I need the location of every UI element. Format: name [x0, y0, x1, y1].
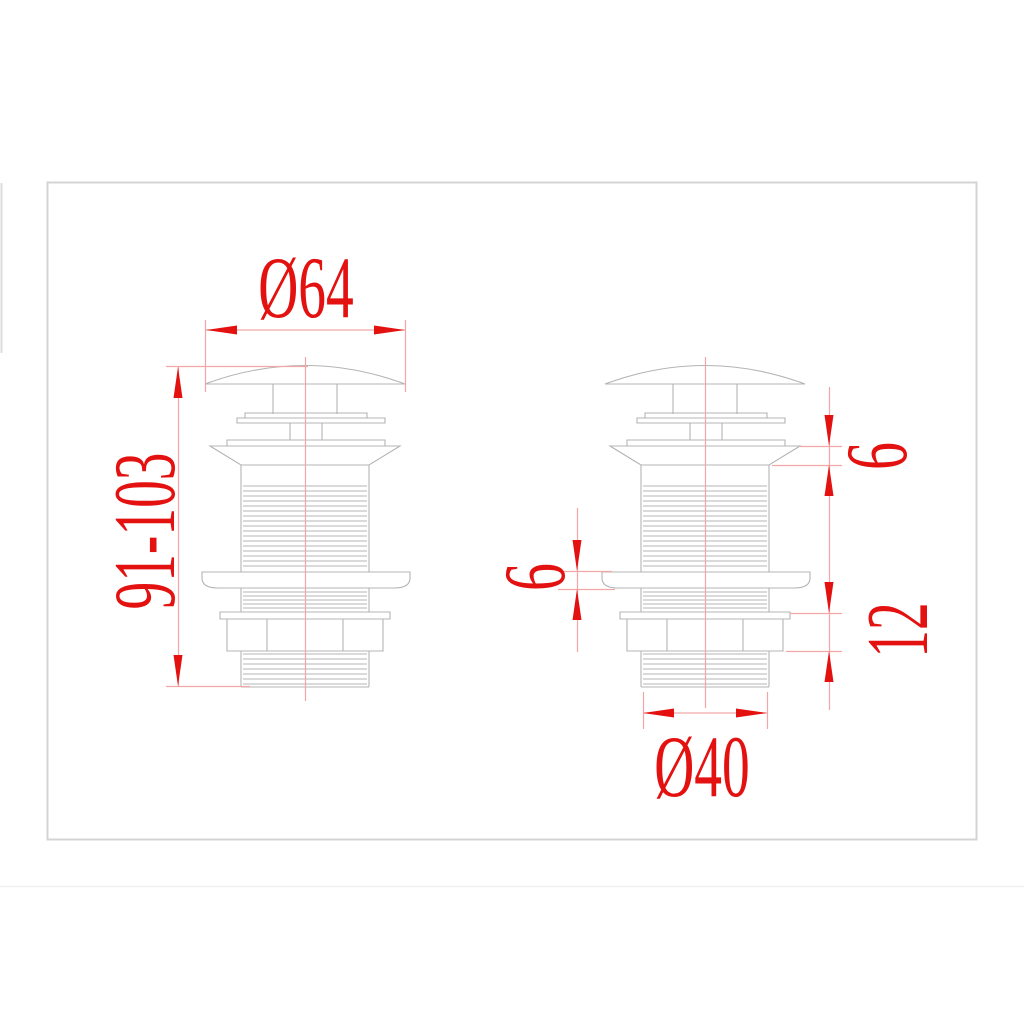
arrow-flange6-top: [825, 415, 834, 446]
dim-washer-thickness-label: 6: [485, 563, 583, 591]
technical-drawing: Ø64 91-103 6 6 12 Ø40: [0, 0, 1024, 1024]
arrow-12-top: [825, 582, 834, 613]
dim-top-diameter-label: Ø64: [258, 238, 353, 336]
arrow-height-top: [174, 367, 183, 398]
arrow-d64-right: [374, 326, 405, 335]
dim-height-range-label: 91-103: [95, 452, 193, 609]
arrow-washer6-bottom: [573, 589, 582, 620]
drawing-canvas: Ø64 91-103 6 6 12 Ø40: [0, 0, 1024, 1024]
arrow-12-bottom: [825, 651, 834, 682]
center-lines: [306, 357, 706, 708]
dimension-lines: [166, 320, 842, 729]
arrow-height-bottom: [174, 655, 183, 686]
dim-locknut-height-label: 12: [848, 602, 946, 657]
dim-bottom-diameter-label: Ø40: [654, 717, 749, 815]
arrow-d64-left: [206, 326, 237, 335]
dim-flange-height-label: 6: [827, 442, 925, 470]
